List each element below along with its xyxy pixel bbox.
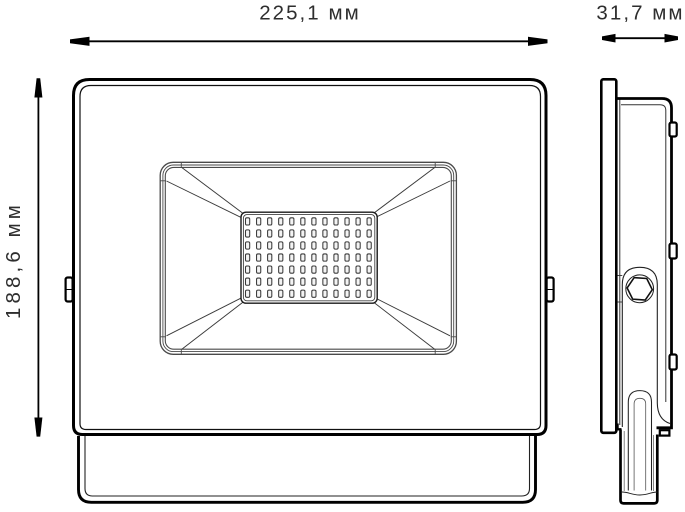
svg-text:31,7 мм: 31,7 мм	[596, 1, 684, 24]
svg-text:188,6 мм: 188,6 мм	[2, 201, 25, 319]
svg-text:225,1 мм: 225,1 мм	[259, 1, 361, 24]
